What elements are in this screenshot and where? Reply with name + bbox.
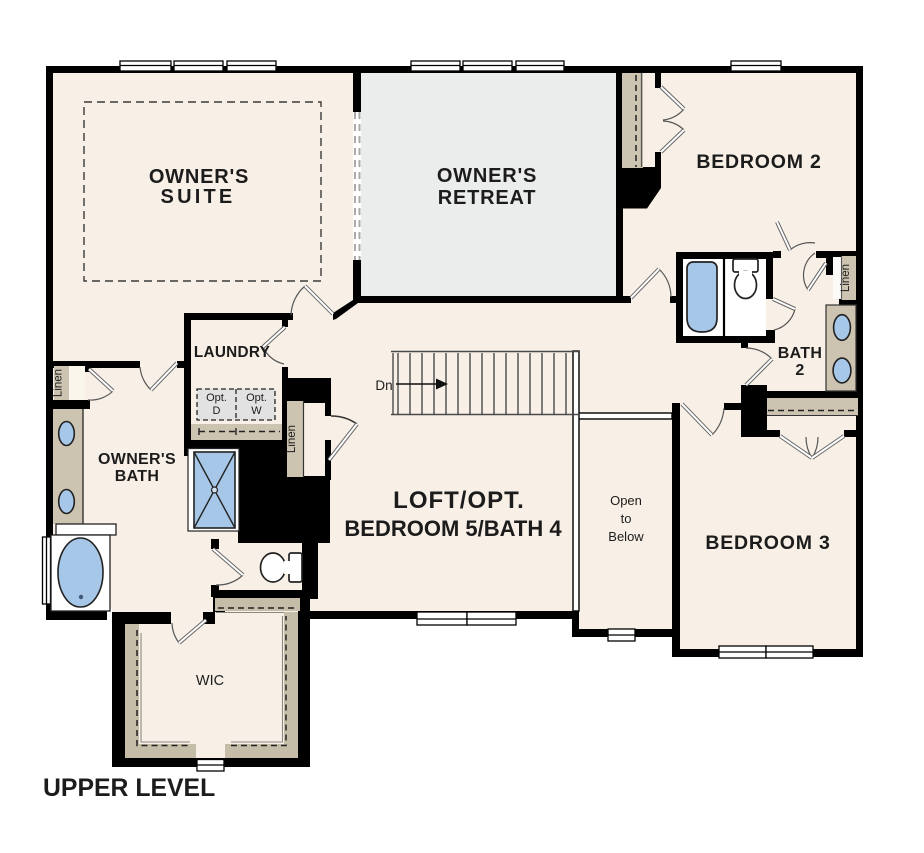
svg-text:BATH: BATH <box>115 468 159 485</box>
svg-text:W: W <box>251 405 262 417</box>
svg-text:2: 2 <box>795 362 804 379</box>
svg-text:OWNER'S: OWNER'S <box>437 165 537 187</box>
svg-text:Dn: Dn <box>375 378 392 393</box>
svg-text:WIC: WIC <box>196 673 224 689</box>
svg-text:LAUNDRY: LAUNDRY <box>194 344 270 361</box>
svg-text:Linen: Linen <box>286 425 298 453</box>
svg-text:BATH: BATH <box>778 345 822 362</box>
svg-text:BEDROOM 5/BATH 4: BEDROOM 5/BATH 4 <box>344 516 562 541</box>
svg-text:OWNER'S: OWNER'S <box>149 166 249 188</box>
svg-text:to: to <box>621 511 632 526</box>
svg-text:LOFT/OPT.: LOFT/OPT. <box>393 487 525 514</box>
svg-text:Linen: Linen <box>53 369 65 397</box>
svg-text:BEDROOM 2: BEDROOM 2 <box>696 151 821 173</box>
svg-text:Opt.: Opt. <box>206 392 227 404</box>
svg-text:RETREAT: RETREAT <box>438 187 537 209</box>
svg-text:D: D <box>213 405 221 417</box>
svg-text:Linen: Linen <box>840 264 852 292</box>
svg-text:BEDROOM 3: BEDROOM 3 <box>705 532 830 554</box>
svg-text:UPPER LEVEL: UPPER LEVEL <box>43 775 215 802</box>
svg-text:Below: Below <box>608 529 644 544</box>
svg-text:SUITE: SUITE <box>161 186 236 208</box>
svg-text:Opt.: Opt. <box>246 392 267 404</box>
svg-text:OWNER'S: OWNER'S <box>98 451 176 468</box>
svg-text:Open: Open <box>610 493 642 508</box>
